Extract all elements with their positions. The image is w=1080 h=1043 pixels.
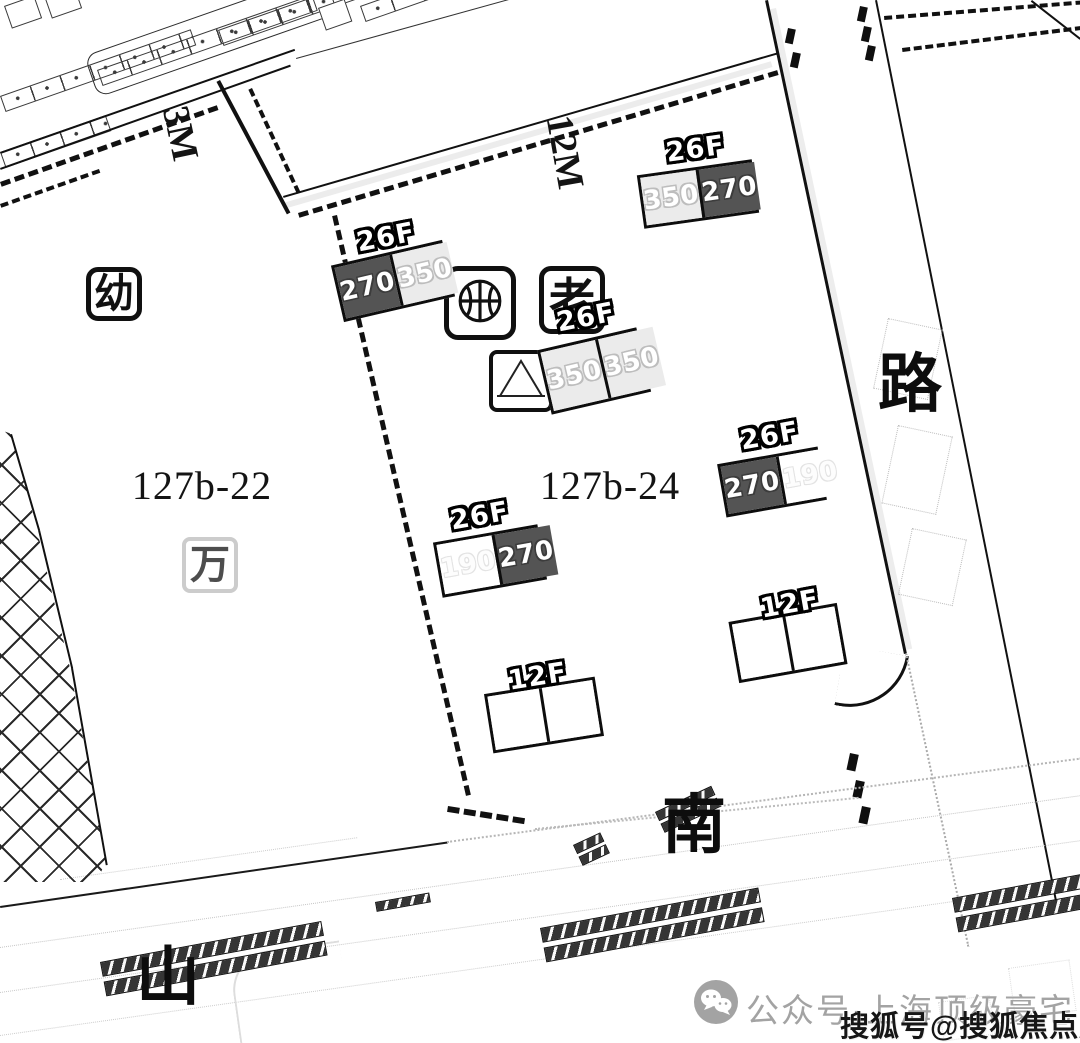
lane-dash <box>861 26 872 42</box>
faint-parcel-outline <box>881 425 952 515</box>
crosswalk-stripes <box>952 873 1080 937</box>
lane-dash <box>857 6 868 22</box>
strip-small-building <box>4 0 42 29</box>
building-cell: 270 <box>491 525 558 584</box>
road-name-south: 南 <box>662 793 726 857</box>
street-edge-line <box>296 0 706 59</box>
plot-label-127b-22: 127b-22 <box>112 462 292 509</box>
sohu-watermark-text: 搜狐号@搜狐焦点庆安站 <box>840 1003 1080 1043</box>
building-floors-label: 26F <box>664 130 727 169</box>
lane-dash <box>790 52 801 68</box>
faded-facility-box: 万 <box>182 537 238 593</box>
plot-label-127b-24: 127b-24 <box>520 462 700 509</box>
road-lane-dotted <box>0 795 1080 948</box>
plot-boundary-dashed-corner <box>447 806 525 824</box>
basketball-icon <box>456 277 504 330</box>
boundary-dashed-line <box>0 169 100 208</box>
lane-dash <box>846 753 858 771</box>
faint-parcel-outline <box>898 528 967 606</box>
wechat-icon <box>694 980 738 1029</box>
road-name-east: 路 <box>878 352 942 416</box>
building-cell: 350 <box>389 242 458 306</box>
lane-dash <box>858 806 870 824</box>
road-dashed-line <box>902 26 1080 52</box>
building-block: 350 270 <box>637 159 759 229</box>
faded-facility-label: 万 <box>190 545 230 585</box>
kindergarten-box: 幼 <box>86 267 142 321</box>
road-width-dimension-label: 12M <box>537 112 593 192</box>
building-cell: 270 <box>695 162 760 218</box>
basketball-court-box <box>444 266 516 340</box>
building-cell: 190 <box>775 447 841 504</box>
building-cell: 190 <box>436 535 500 594</box>
lane-dash <box>865 45 876 61</box>
road-edge-dotted <box>447 757 1080 843</box>
building-cell: 350 <box>640 170 702 225</box>
boundary-dashed-line <box>248 88 300 194</box>
site-plan-map: 幼 老 万 270 350 26F 350 270 26F 350 350 26… <box>0 0 1080 1043</box>
strip-small-building <box>44 0 82 19</box>
building-cell: 350 <box>595 327 666 399</box>
kindergarten-label: 幼 <box>94 274 134 314</box>
lane-dash <box>785 28 796 44</box>
building-cell: 270 <box>721 457 784 514</box>
hatched-area <box>0 430 118 882</box>
crosswalk-stripes <box>375 892 431 914</box>
building-block: 270 350 <box>331 240 455 322</box>
crosswalk-stripes <box>573 832 611 868</box>
building-cell <box>487 689 546 750</box>
strip-row-building <box>0 115 111 168</box>
building-block: 270 190 <box>717 447 827 518</box>
road-name-southwest: 山 <box>136 945 200 1009</box>
building-block: 350 350 <box>537 327 651 414</box>
strip-row-building <box>360 0 500 22</box>
building-block: 190 270 <box>433 524 547 598</box>
